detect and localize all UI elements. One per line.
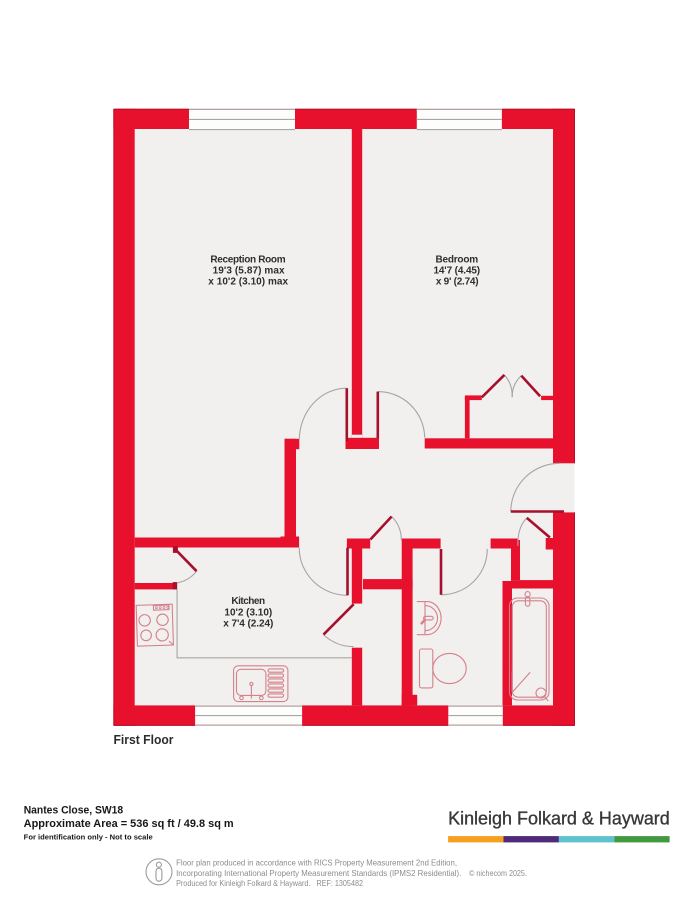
svg-text:x 9' (2.74): x 9' (2.74)	[436, 277, 479, 288]
svg-text:Reception Room: Reception Room	[210, 254, 285, 265]
svg-text:Produced for Kinleigh Folkard: Produced for Kinleigh Folkard & Hayward.…	[176, 879, 363, 888]
svg-text:For identification only - Not: For identification only - Not to scale	[24, 832, 153, 841]
svg-text:Kitchen: Kitchen	[231, 596, 265, 607]
svg-text:Incorporating International Pr: Incorporating International Property Mea…	[176, 869, 461, 878]
svg-text:Floor plan produced in accorda: Floor plan produced in accordance with R…	[176, 859, 457, 868]
svg-text:x 10'2 (3.10) max: x 10'2 (3.10) max	[208, 277, 288, 288]
svg-text:14'7 (4.45): 14'7 (4.45)	[433, 266, 480, 277]
svg-text:Bedroom: Bedroom	[435, 254, 478, 265]
svg-text:10'2 (3.10): 10'2 (3.10)	[224, 607, 272, 618]
svg-text:Approximate Area = 536 sq ft /: Approximate Area = 536 sq ft / 49.8 sq m	[24, 818, 234, 830]
svg-text:x 7'4 (2.24): x 7'4 (2.24)	[223, 618, 273, 629]
svg-text:First Floor: First Floor	[114, 732, 174, 747]
svg-text:Nantes Close, SW18: Nantes Close, SW18	[24, 805, 124, 817]
svg-text:© nichecom 2025.: © nichecom 2025.	[469, 869, 527, 878]
svg-text:19'3 (5.87) max: 19'3 (5.87) max	[213, 266, 285, 277]
svg-text:Kinleigh Folkard & Hayward: Kinleigh Folkard & Hayward	[448, 809, 670, 829]
